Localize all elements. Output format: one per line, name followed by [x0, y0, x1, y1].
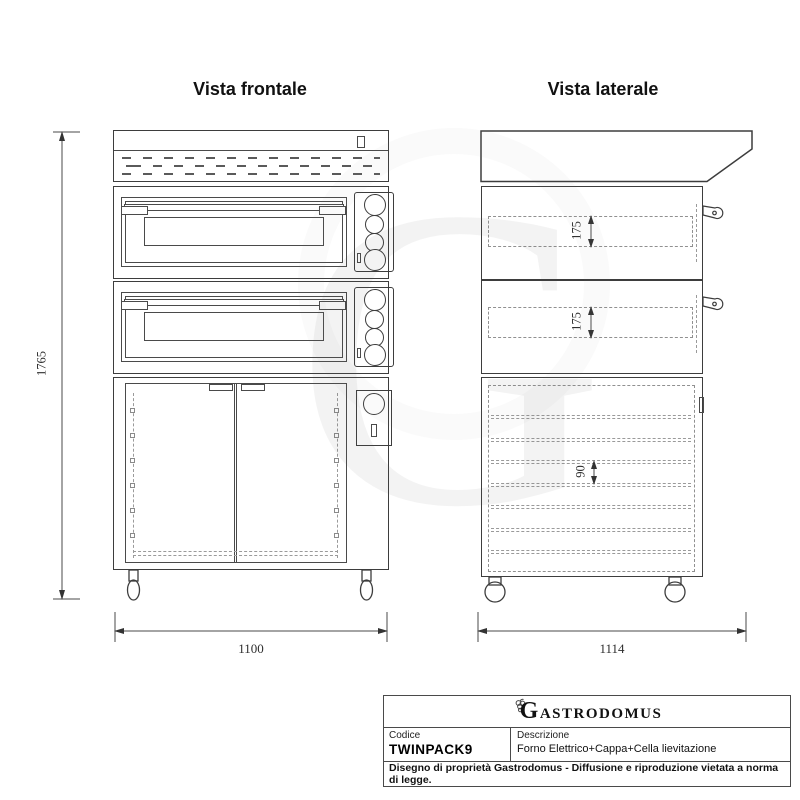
front-oven2-handle-bar	[124, 299, 344, 306]
front-hood-grille-row	[122, 165, 380, 167]
description-cell: Descrizione Forno Elettrico+Cappa+Cella …	[511, 728, 790, 761]
hinge-mark	[130, 533, 135, 538]
front-right-foot	[361, 570, 373, 600]
front-left-foot	[128, 570, 140, 600]
front-oven2-knob-2	[365, 310, 384, 329]
technical-drawing-page: Vista frontale Vista laterale	[0, 0, 800, 800]
front-cabinet-switch	[371, 424, 377, 437]
shelf-rail	[491, 550, 691, 554]
front-cabinet-knob	[363, 393, 385, 415]
hinge-mark	[130, 458, 135, 463]
front-hood-divider	[114, 150, 388, 151]
front-cabinet-handle-left	[209, 384, 233, 391]
shelf-rail	[491, 505, 691, 509]
front-oven1-indicator-light	[357, 253, 361, 263]
code-cell: Codice TWINPACK9	[384, 728, 511, 761]
shelf-rail	[491, 528, 691, 532]
dim-line-side-depth	[477, 612, 747, 642]
front-oven2-handle-bracket-left	[121, 301, 148, 310]
side-oven2-chamber	[488, 307, 693, 338]
front-oven2-knob-1	[364, 289, 386, 311]
side-cabinet-inner-dash	[488, 385, 695, 572]
front-oven1-knob-4	[364, 249, 386, 271]
brand-logo: GASTRODOMUS	[512, 697, 663, 725]
front-oven2-knob-4	[364, 344, 386, 366]
title-block: GASTRODOMUS Codice TWINPACK9 Descrizione…	[383, 695, 791, 787]
side-left-caster	[485, 577, 505, 602]
side-oven1-latch-icon	[703, 206, 723, 218]
front-oven1-handle-bracket-left	[121, 206, 148, 215]
shelf-rail	[491, 415, 691, 419]
dim-text-oven1-chamber: 175	[570, 203, 585, 259]
hinge-mark	[130, 508, 135, 513]
front-oven2-handle-bracket-right	[319, 301, 346, 310]
hinge-mark	[334, 508, 339, 513]
code-value: TWINPACK9	[389, 742, 505, 758]
front-oven2-indicator-light	[357, 348, 361, 358]
hinge-mark	[130, 408, 135, 413]
hinge-mark	[334, 533, 339, 538]
title-block-logo-row: GASTRODOMUS	[384, 696, 790, 728]
shelf-rail	[491, 438, 691, 442]
title-block-data-row: Codice TWINPACK9 Descrizione Forno Elett…	[384, 728, 790, 762]
side-oven1-chamber	[488, 216, 693, 247]
side-oven2-latch-icon	[703, 297, 723, 310]
front-hood-vent-switch	[357, 136, 365, 148]
front-cabinet-door-divider	[234, 383, 237, 563]
dim-line-front-width	[114, 612, 388, 642]
hinge-mark	[130, 483, 135, 488]
front-view-title: Vista frontale	[160, 79, 340, 100]
front-oven1-knob-1	[364, 194, 386, 216]
side-right-caster	[665, 577, 685, 602]
description-value: Forno Elettrico+Cappa+Cella lievitazione	[517, 742, 784, 756]
brand-name: GASTRODOMUS	[520, 698, 663, 725]
front-cabinet-bottom-dash-2	[133, 555, 338, 556]
dim-text-overall-height: 1765	[35, 334, 50, 394]
hinge-mark	[334, 433, 339, 438]
hinge-mark	[334, 408, 339, 413]
hinge-mark	[334, 483, 339, 488]
front-cabinet-handle-right	[241, 384, 265, 391]
front-hood-grille-row	[122, 157, 380, 159]
legal-notice: Disegno di proprietà Gastrodomus - Diffu…	[384, 762, 790, 786]
side-oven2-door-edge-dash	[696, 295, 697, 353]
front-hood-grille-row	[122, 173, 380, 175]
dim-text-side-depth: 1114	[577, 641, 647, 657]
hinge-mark	[334, 458, 339, 463]
dim-text-shelf-spacing: 90	[574, 452, 589, 492]
front-oven2-door-window	[144, 312, 324, 341]
front-oven1-handle-bracket-right	[319, 206, 346, 215]
description-label: Descrizione	[517, 730, 784, 742]
code-label: Codice	[389, 730, 505, 742]
dim-text-front-width: 1100	[216, 641, 286, 657]
front-oven1-knob-2	[365, 215, 384, 234]
dim-text-oven2-chamber: 175	[570, 294, 585, 350]
hinge-mark	[130, 433, 135, 438]
shelf-rail	[491, 460, 691, 464]
side-view-title: Vista laterale	[513, 79, 693, 100]
front-cabinet-bottom-dash-1	[133, 551, 338, 552]
side-hood-outline	[481, 131, 752, 182]
side-oven1-door-edge-dash	[696, 204, 697, 262]
side-cabinet-handle	[699, 397, 704, 413]
dim-line-overall-height	[53, 131, 80, 600]
shelf-rail	[491, 483, 691, 487]
front-oven1-handle-bar	[124, 204, 344, 211]
front-oven1-door-window	[144, 217, 324, 246]
